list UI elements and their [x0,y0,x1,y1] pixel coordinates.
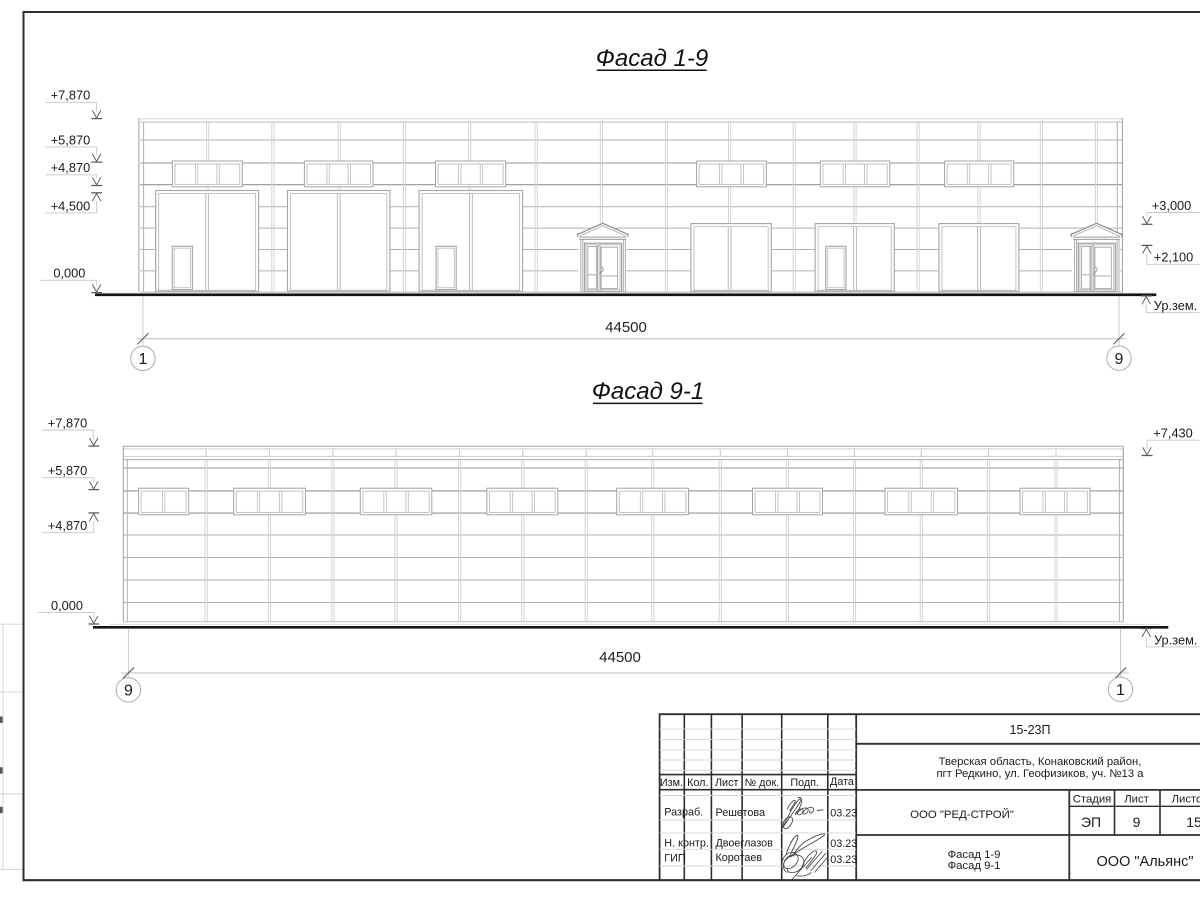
svg-text:Лист: Лист [715,777,739,789]
svg-text:9: 9 [1133,814,1141,830]
svg-text:03.23: 03.23 [830,854,857,866]
svg-text:+4,870: +4,870 [51,160,91,175]
svg-text:Кол.: Кол. [687,777,708,789]
svg-text:+5,870: +5,870 [51,132,91,147]
svg-text:Разраб.: Разраб. [664,806,703,818]
svg-text:0,000: 0,000 [51,598,83,613]
svg-text:9: 9 [124,683,133,700]
svg-text:Ур.зем.: Ур.зем. [1154,298,1197,313]
svg-text:ГИП: ГИП [664,852,685,864]
svg-text:Изм.: Изм. [660,777,683,789]
svg-text:Н. контр.: Н. контр. [664,838,709,850]
svg-text:Дата: Дата [830,776,854,788]
svg-text:ООО "РЕД-СТРОЙ": ООО "РЕД-СТРОЙ" [910,808,1014,821]
svg-text:ЭП: ЭП [1081,814,1101,830]
svg-text:Подп.: Подп. [790,777,819,789]
svg-text:Фасад 9-1: Фасад 9-1 [948,860,1001,872]
svg-text:Двоеглазов: Двоеглазов [716,838,774,850]
svg-text:Фасад 9-1: Фасад 9-1 [592,378,704,405]
svg-text:03.23: 03.23 [830,838,857,850]
svg-text:+4,870: +4,870 [48,518,88,533]
svg-text:+5,870: +5,870 [48,463,88,478]
svg-text:44500: 44500 [599,649,641,666]
svg-text:9: 9 [1115,351,1124,368]
svg-text:+2,100: +2,100 [1154,250,1194,265]
svg-text:0,000: 0,000 [53,266,85,281]
svg-text:Ур.зем.: Ур.зем. [1154,632,1197,647]
svg-text:1: 1 [1116,682,1125,699]
svg-text:03.23: 03.23 [830,808,857,820]
svg-text:1: 1 [138,351,147,368]
svg-text:15-23П: 15-23П [1010,723,1051,737]
svg-text:ООО "Альянс": ООО "Альянс" [1097,854,1194,870]
svg-text:+7,870: +7,870 [51,88,91,103]
svg-text:+4,500: +4,500 [51,198,91,213]
svg-text:Листов: Листов [1172,793,1200,805]
svg-text:Стадия: Стадия [1073,793,1112,805]
svg-text:Тверская область, Конаковский: Тверская область, Конаковский район, [939,756,1142,768]
svg-text:Решетова: Решетова [716,807,766,819]
svg-text:Лист: Лист [1124,793,1149,805]
svg-text:15: 15 [1186,814,1200,830]
svg-text:+3,000: +3,000 [1152,198,1192,213]
svg-text:+7,870: +7,870 [48,415,88,430]
svg-text:Фасад 1-9: Фасад 1-9 [596,45,708,72]
svg-text:+7,430: +7,430 [1153,426,1193,441]
svg-text:44500: 44500 [605,319,647,336]
svg-text:пгт Редкино, ул. Геофизиков, у: пгт Редкино, ул. Геофизиков, уч. №13 а [936,768,1144,780]
svg-text:№ док.: № док. [745,777,780,789]
svg-text:Коротаев: Коротаев [716,852,763,864]
